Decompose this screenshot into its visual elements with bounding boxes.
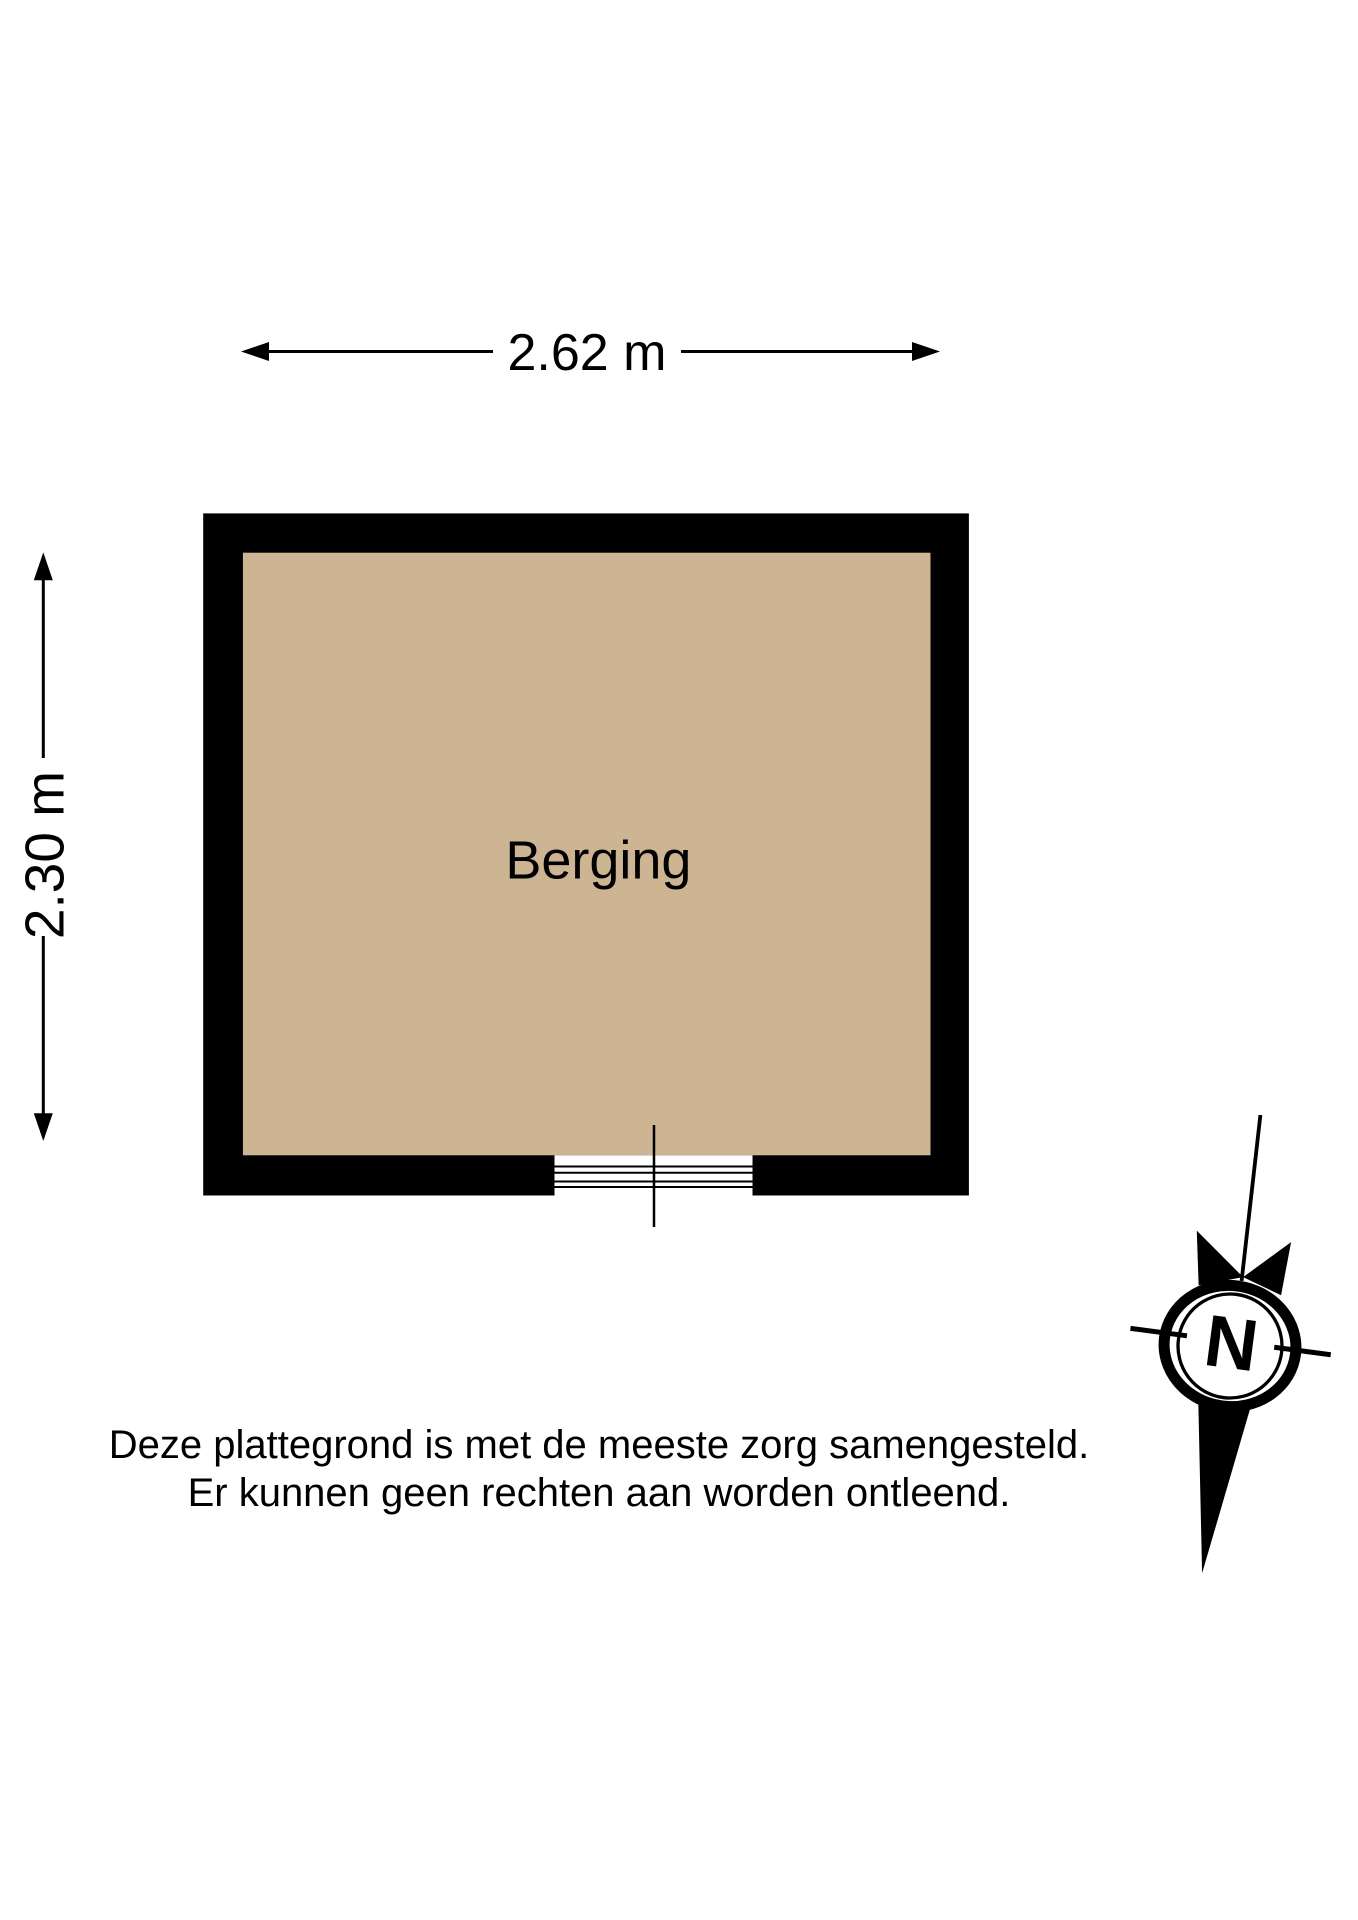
svg-text:N: N [1200, 1300, 1263, 1387]
svg-text:2.30 m: 2.30 m [14, 771, 76, 939]
svg-text:Er kunnen geen rechten aan wor: Er kunnen geen rechten aan worden ontlee… [188, 1471, 1011, 1515]
svg-text:Deze plattegrond is met de mee: Deze plattegrond is met de meeste zorg s… [109, 1423, 1090, 1467]
svg-text:2.62 m: 2.62 m [508, 324, 667, 382]
svg-text:Berging: Berging [505, 831, 691, 891]
